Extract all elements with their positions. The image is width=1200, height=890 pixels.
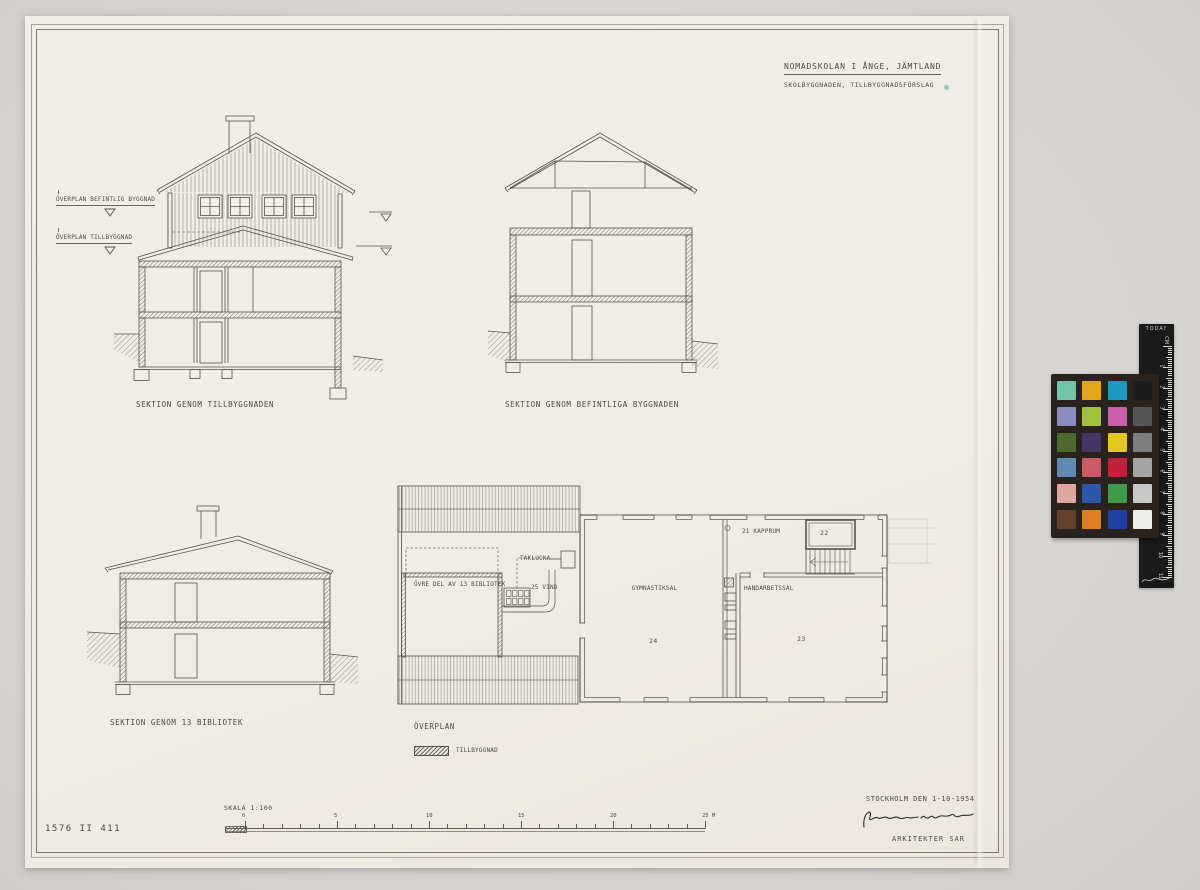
ruler-tick	[1168, 470, 1172, 471]
sheet-subtitle: SKOLBYGGNADEN, TILLBYGGNADSFÖRSLAG	[784, 81, 934, 89]
ruler-tick	[1168, 443, 1172, 444]
ruler-tick	[1168, 466, 1172, 467]
legend-hatch-swatch	[414, 746, 449, 756]
color-patch	[1082, 510, 1101, 529]
ruler-tick	[1168, 499, 1172, 500]
ruler-tick	[1168, 424, 1172, 425]
ruler-tick	[1168, 348, 1172, 349]
ruler-number: 2	[1158, 385, 1164, 388]
scale-tick	[337, 821, 338, 829]
ruler-tick	[1168, 487, 1172, 488]
caption-section-tillbyggnaden: SEKTION GENOM TILLBYGGNADEN	[136, 400, 274, 409]
ruler-tick	[1168, 453, 1172, 454]
scale-tick-label: 20	[610, 813, 617, 819]
ruler-tick	[1168, 457, 1172, 458]
scale-tick	[245, 821, 246, 829]
ruler-tick	[1168, 550, 1172, 551]
ruler-tick	[1168, 382, 1172, 383]
scale-tick	[429, 821, 430, 829]
ruler-number: 8	[1158, 511, 1164, 514]
color-patch	[1133, 484, 1152, 503]
caption-overplan: ÖVERPLAN	[414, 722, 455, 731]
color-patch	[1082, 381, 1101, 400]
color-patch	[1057, 407, 1076, 426]
scale-tick-label: 25 M	[702, 813, 715, 819]
ruler-tick	[1168, 562, 1172, 563]
ruler-tick	[1168, 543, 1172, 544]
ruler-tick	[1168, 417, 1172, 418]
ruler-tick	[1168, 375, 1172, 376]
ruler-tick	[1168, 531, 1172, 532]
ruler-tick	[1168, 527, 1172, 528]
ruler-number: 7	[1158, 490, 1164, 493]
ruler-tick	[1168, 569, 1172, 570]
ruler-tick	[1168, 359, 1172, 360]
color-patch	[1057, 484, 1076, 503]
ruler-tick	[1168, 516, 1172, 517]
ruler-tick	[1168, 554, 1172, 555]
ruler-tick	[1168, 401, 1172, 402]
color-patch	[1057, 381, 1076, 400]
ruler-tick	[1168, 478, 1172, 479]
room-label-library: ÖVRE DEL AV 13 BIBLIOTEK	[414, 581, 506, 588]
room-number-22: 22	[820, 529, 829, 537]
scale-tick	[282, 824, 283, 829]
ruler-tick	[1168, 552, 1172, 553]
ruler-tick	[1168, 434, 1172, 435]
ghost-lines	[887, 519, 935, 563]
ruler-tick	[1168, 518, 1172, 519]
scale-tick	[558, 824, 559, 829]
section-tillbyggnaden-drawing	[54, 98, 404, 408]
ruler-tick	[1168, 403, 1172, 404]
ruler-tick	[1168, 413, 1172, 414]
ruler-tick	[1168, 369, 1172, 370]
ruler-tick	[1168, 564, 1172, 565]
ruler-tick	[1168, 455, 1172, 456]
ruler-tick	[1168, 474, 1172, 475]
ruler-tick	[1168, 497, 1172, 498]
ruler-tick	[1166, 504, 1173, 505]
ruler-tick	[1168, 415, 1172, 416]
color-patch	[1082, 484, 1101, 503]
scale-tick	[668, 824, 669, 829]
color-patch	[1108, 484, 1127, 503]
room-number-24: 24	[649, 637, 658, 645]
ruler-number: 9	[1158, 532, 1164, 535]
ruler-tick	[1168, 411, 1172, 412]
ruler-tick	[1168, 373, 1172, 374]
ruler-tick	[1168, 426, 1172, 427]
scale-tick	[374, 824, 375, 829]
ruler-tick	[1166, 525, 1173, 526]
paper-crease	[972, 20, 984, 865]
scale-tick	[687, 824, 688, 829]
ruler-tick	[1168, 512, 1172, 513]
color-patch	[1133, 407, 1152, 426]
scale-bar: SKALA 1:100 0510152025 M	[222, 804, 752, 840]
ruler-tick	[1168, 560, 1172, 561]
scale-tick	[595, 824, 596, 829]
ruler-tick	[1168, 438, 1172, 439]
scale-tick	[411, 824, 412, 829]
scale-tick	[466, 824, 467, 829]
color-patch	[1082, 407, 1101, 426]
scale-tick	[447, 824, 448, 829]
ruler-number: 5	[1158, 448, 1164, 451]
ruler-tick	[1168, 508, 1172, 509]
scale-tick	[613, 821, 614, 829]
ruler-tick	[1166, 546, 1173, 547]
room-label-vind: 25 VIND	[531, 584, 558, 591]
ruler-tick	[1168, 522, 1172, 523]
ruler-tick	[1168, 354, 1172, 355]
scale-tick	[263, 824, 264, 829]
sheet-title: NOMADSKOLAN I ÅNGE, JÄMTLAND	[784, 62, 941, 75]
ruler-tick	[1168, 384, 1172, 385]
ruler-tick	[1168, 380, 1172, 381]
ruler-tick	[1166, 420, 1173, 421]
ruler-tick	[1168, 363, 1172, 364]
ruler-tick	[1168, 548, 1172, 549]
room-label-kapprum: 21 KAPPRUM	[742, 528, 780, 535]
place-date: STOCKHOLM DEN 1-10-1954	[866, 795, 974, 803]
room-label-gym: GYMNASTIKSAL	[612, 585, 697, 592]
ruler-tick	[1168, 392, 1172, 393]
scale-tick-label: 10	[426, 813, 433, 819]
scale-tick	[650, 824, 651, 829]
color-patch	[1108, 510, 1127, 529]
ruler-tick	[1168, 501, 1172, 502]
scale-tick	[355, 824, 356, 829]
ruler-tick	[1168, 428, 1172, 429]
ruler-tick	[1168, 386, 1172, 387]
ruler-tick	[1168, 489, 1172, 490]
scale-tick-label: 15	[518, 813, 525, 819]
plan-openings	[579, 514, 887, 702]
color-patch	[1082, 433, 1101, 452]
ruler-tick	[1168, 436, 1172, 437]
ruler-script-marking	[1141, 575, 1171, 585]
color-patch	[1108, 407, 1127, 426]
color-patch	[1108, 458, 1127, 477]
ruler-tick	[1168, 558, 1172, 559]
scale-tick-label: 0	[242, 813, 245, 819]
architects-label: ARKITEKTER SAR	[892, 835, 965, 843]
color-patch	[1133, 433, 1152, 452]
color-patch	[1133, 510, 1152, 529]
ruler-number: 4	[1158, 427, 1164, 430]
ruler-tick	[1168, 520, 1172, 521]
ruler-tick	[1168, 571, 1172, 572]
ruler-tick	[1168, 352, 1172, 353]
section-befintliga-drawing	[480, 125, 730, 405]
section-bibliotek-drawing	[75, 500, 365, 715]
scale-bar-ticks: 0510152025 M	[222, 804, 752, 840]
caption-section-bibliotek: SEKTION GENOM 13 BIBLIOTEK	[110, 718, 243, 727]
scale-tick	[539, 824, 540, 829]
scale-tick	[576, 824, 577, 829]
ruler-tick	[1168, 537, 1172, 538]
overplan-drawing	[392, 478, 937, 713]
room-number-23: 23	[797, 635, 806, 643]
ruler-tick	[1168, 529, 1172, 530]
color-patch	[1057, 433, 1076, 452]
scale-tick-label: 5	[334, 813, 337, 819]
ruler-number: 10	[1157, 552, 1163, 558]
ruler-number: 6	[1158, 469, 1164, 472]
color-checker-patches	[1051, 374, 1159, 538]
scale-tick	[503, 824, 504, 829]
ruler-tick	[1168, 510, 1172, 511]
ruler-tick	[1168, 464, 1172, 465]
color-patch	[1133, 381, 1152, 400]
scale-tick	[631, 824, 632, 829]
color-patch	[1108, 381, 1127, 400]
drawing-number: 1576 II 411	[45, 824, 121, 834]
ruler-tick	[1166, 357, 1173, 358]
ruler-tick	[1168, 573, 1172, 574]
ruler-tick	[1168, 422, 1172, 423]
ruler-tick	[1163, 556, 1172, 557]
ruler-tick	[1166, 441, 1173, 442]
scale-tick	[319, 824, 320, 829]
scale-tick	[484, 824, 485, 829]
ruler-tick	[1168, 407, 1172, 408]
ruler-tick	[1168, 533, 1172, 534]
ruler-tick	[1168, 445, 1172, 446]
scale-tick	[392, 824, 393, 829]
ruler-tick	[1166, 378, 1173, 379]
ruler-tick	[1168, 405, 1172, 406]
scale-tick	[300, 824, 301, 829]
ink-stain	[944, 85, 949, 90]
ruler-tick	[1166, 399, 1173, 400]
ruler-number: 1	[1158, 364, 1164, 367]
ruler-tick	[1168, 394, 1172, 395]
ruler-tick	[1168, 432, 1172, 433]
ruler-tick	[1168, 506, 1172, 507]
color-checker	[1051, 374, 1159, 538]
legend-label: TILLBYGGNAD	[456, 747, 498, 754]
caption-section-befintliga: SEKTION GENOM BEFINTLIGA BYGGNADEN	[505, 400, 679, 409]
ruler-tick	[1166, 462, 1173, 463]
color-patch	[1133, 458, 1152, 477]
color-patch	[1057, 458, 1076, 477]
ruler-tick	[1168, 449, 1172, 450]
architect-signature	[860, 805, 978, 835]
ruler-tick	[1166, 483, 1173, 484]
color-patch	[1108, 433, 1127, 452]
ruler-tick	[1168, 541, 1172, 542]
ruler-tick	[1168, 485, 1172, 486]
ruler-tick	[1166, 567, 1173, 568]
ruler-tick	[1168, 350, 1172, 351]
color-patch	[1057, 510, 1076, 529]
ruler-tick	[1168, 459, 1172, 460]
scale-tick	[705, 821, 706, 829]
ruler-tick	[1168, 365, 1172, 366]
ruler-tick	[1168, 476, 1172, 477]
archival-photo: NOMADSKOLAN I ÅNGE, JÄMTLAND SKOLBYGGNAD…	[0, 0, 1200, 890]
ruler-tick	[1168, 371, 1172, 372]
ruler-tick	[1168, 396, 1172, 397]
ruler-number: 3	[1158, 406, 1164, 409]
color-patch	[1082, 458, 1101, 477]
scale-tick	[521, 821, 522, 829]
room-label-taklucka: TAKLUCKA	[520, 555, 551, 562]
ruler-tick	[1168, 495, 1172, 496]
ruler-tick	[1168, 390, 1172, 391]
ruler-tick	[1168, 539, 1172, 540]
ruler-tick	[1168, 361, 1172, 362]
ruler-tick	[1168, 480, 1172, 481]
ruler-tick	[1168, 447, 1172, 448]
ruler-tick	[1168, 491, 1172, 492]
room-label-handarbete: HANDARBETSSAL	[744, 585, 794, 592]
ruler-tick	[1168, 468, 1172, 469]
ruler-tick	[1163, 346, 1172, 347]
